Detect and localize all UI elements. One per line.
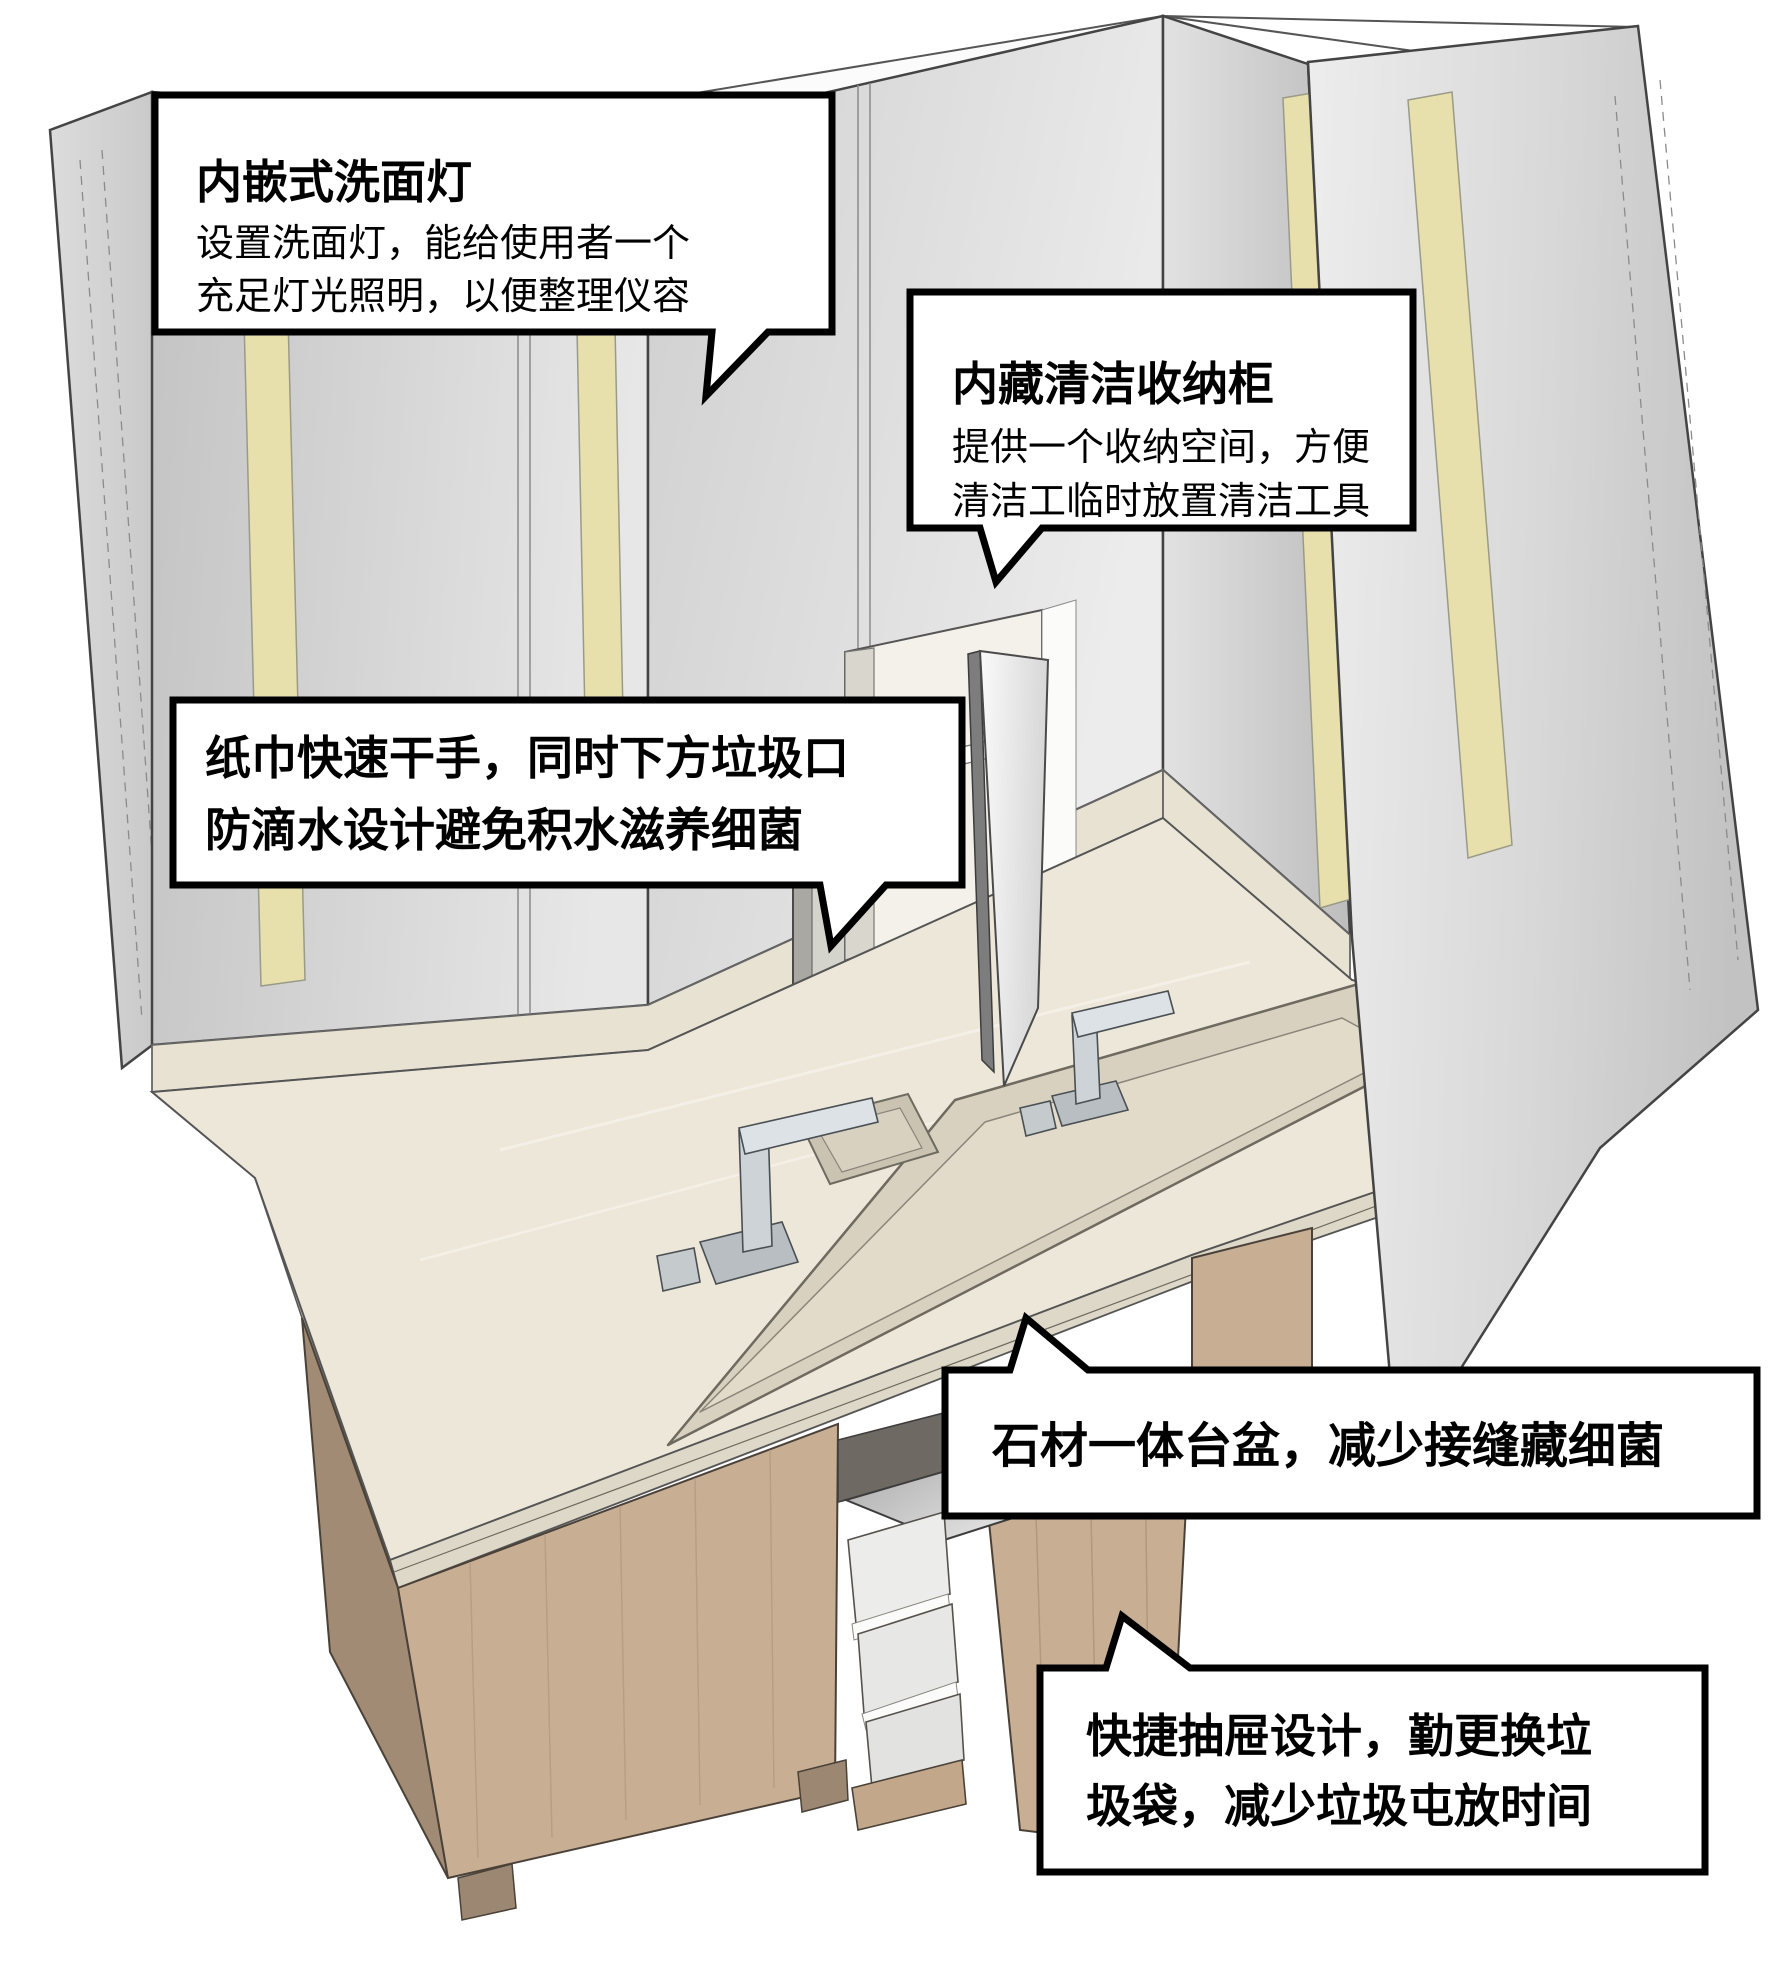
callout-quick-drawer: 快捷抽屉设计，勤更换垃 圾袋，减少垃圾屯放时间 xyxy=(1040,1616,1705,1872)
callout-integrated-stone-basin: 石材一体台盆，减少接缝藏细菌 xyxy=(945,1318,1757,1516)
bathroom-vanity-diagram: 内嵌式洗面灯 设置洗面灯，能给使用者一个 充足灯光照明，以便整理仪容 内藏清洁收… xyxy=(0,0,1790,1968)
callout-title: 内嵌式洗面灯 xyxy=(196,156,472,208)
callout-title: 内藏清洁收纳柜 xyxy=(952,358,1274,410)
callout-body-line: 石材一体台盆，减少接缝藏细菌 xyxy=(992,1420,1664,1473)
callout-body-line: 设置洗面灯，能给使用者一个 xyxy=(196,223,690,265)
callout-body-line: 充足灯光照明，以便整理仪容 xyxy=(196,276,690,318)
callout-body-line: 提供一个收纳空间，方便 xyxy=(952,427,1370,469)
vanity-illustration: 内嵌式洗面灯 设置洗面灯，能给使用者一个 充足灯光照明，以便整理仪容 内藏清洁收… xyxy=(0,0,1790,1968)
callout-body-line: 圾袋，减少垃圾屯放时间 xyxy=(1086,1780,1592,1832)
callout-body-line: 清洁工临时放置清洁工具 xyxy=(952,481,1370,523)
mirror-cabinet-far-right xyxy=(1308,26,1758,1468)
callout-body-line: 防滴水设计避免积水滋养细菌 xyxy=(205,804,803,856)
callout-body-line: 纸巾快速干手，同时下方垃圾口 xyxy=(205,732,849,784)
callout-body-line: 快捷抽屉设计，勤更换垃 xyxy=(1086,1710,1592,1762)
